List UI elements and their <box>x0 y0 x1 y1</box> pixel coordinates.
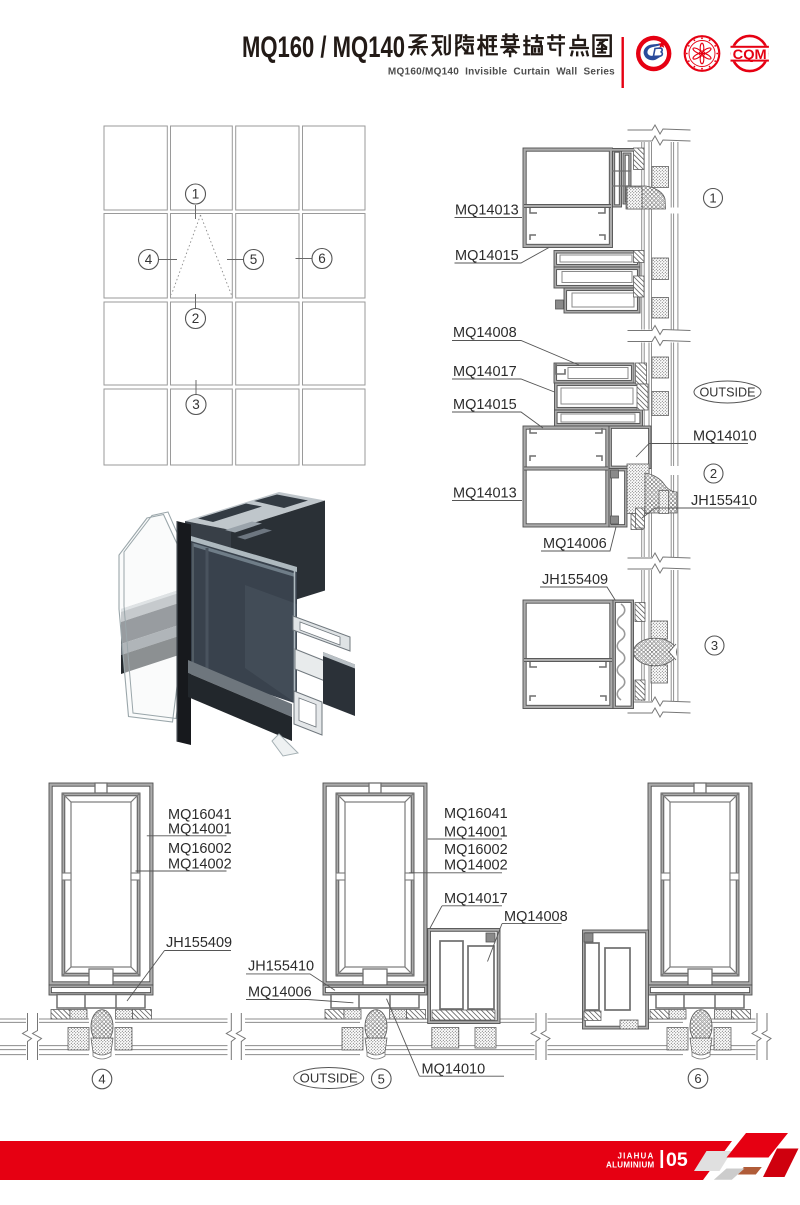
svg-text:4: 4 <box>145 252 153 267</box>
svg-text:MQ16002: MQ16002 <box>168 841 232 857</box>
svg-text:3: 3 <box>711 638 718 653</box>
svg-text:MQ14002: MQ14002 <box>444 858 508 874</box>
svg-text:2: 2 <box>192 311 200 326</box>
svg-text:3: 3 <box>192 397 200 412</box>
svg-text:MQ14008: MQ14008 <box>504 909 568 925</box>
svg-text:MQ14002: MQ14002 <box>168 857 232 873</box>
svg-text:MQ14013: MQ14013 <box>453 486 517 502</box>
svg-text:OUTSIDE: OUTSIDE <box>700 385 756 400</box>
svg-text:5: 5 <box>378 1071 385 1086</box>
svg-text:MQ16041: MQ16041 <box>444 806 508 822</box>
svg-text:OUTSIDE: OUTSIDE <box>300 1071 358 1086</box>
svg-text:4: 4 <box>98 1072 105 1087</box>
svg-text:JH155410: JH155410 <box>248 959 314 975</box>
svg-text:MQ160/MQ140 Invisible Curtai: MQ160/MQ140 Invisible Curtain Wall Serie… <box>388 67 615 78</box>
svg-text:CQM: CQM <box>733 47 767 62</box>
svg-text:MQ160 / MQ140: MQ160 / MQ140 <box>242 31 405 64</box>
svg-text:2: 2 <box>710 466 717 481</box>
svg-text:5: 5 <box>250 252 258 267</box>
svg-text:1: 1 <box>709 191 716 206</box>
svg-text:1: 1 <box>192 187 200 202</box>
svg-text:MQ14015: MQ14015 <box>455 248 519 264</box>
svg-text:MQ14008: MQ14008 <box>453 325 517 341</box>
svg-text:MQ14006: MQ14006 <box>248 985 312 1001</box>
svg-text:MQ14017: MQ14017 <box>453 364 517 380</box>
svg-text:MQ14017: MQ14017 <box>444 891 508 907</box>
svg-text:MQ14001: MQ14001 <box>168 822 232 838</box>
svg-text:MQ14013: MQ14013 <box>455 203 519 219</box>
svg-text:JH155410: JH155410 <box>691 493 757 509</box>
svg-text:6: 6 <box>694 1071 701 1086</box>
svg-text:05: 05 <box>666 1149 688 1171</box>
svg-text:6: 6 <box>318 251 326 266</box>
svg-text:MQ14010: MQ14010 <box>422 1062 486 1078</box>
svg-text:MQ14010: MQ14010 <box>693 429 757 445</box>
svg-text:MQ14015: MQ14015 <box>453 397 517 413</box>
svg-text:MQ14006: MQ14006 <box>543 536 607 552</box>
svg-text:JIAHUA: JIAHUA <box>618 1152 655 1161</box>
svg-text:JH155409: JH155409 <box>166 935 232 951</box>
svg-text:JH155409: JH155409 <box>542 572 608 588</box>
svg-text:MQ14001: MQ14001 <box>444 825 508 841</box>
svg-text:ALUMINIUM: ALUMINIUM <box>606 1161 655 1170</box>
svg-text:MQ16002: MQ16002 <box>444 842 508 858</box>
